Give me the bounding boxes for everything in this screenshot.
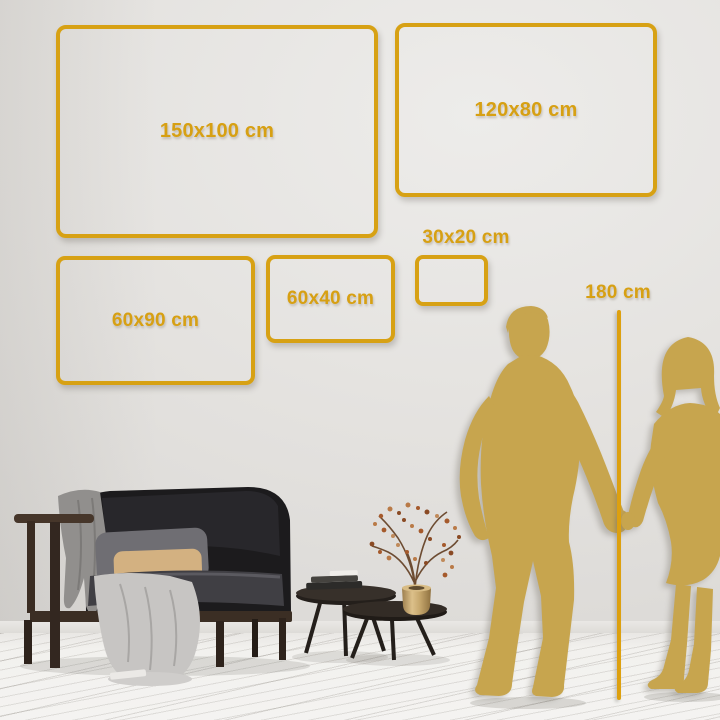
sofa-leg xyxy=(216,621,224,667)
sofa xyxy=(14,487,292,686)
books xyxy=(306,570,363,590)
silhouette-shadow xyxy=(644,692,720,702)
height-marker-label: 180 cm xyxy=(557,281,679,305)
size-label: 120x80 cm xyxy=(474,99,577,122)
size-frame-60x90: 60x90 cm xyxy=(56,256,255,385)
size-frame-120x80: 120x80 cm xyxy=(395,23,657,197)
table-shadow xyxy=(346,654,450,666)
size-label: 60x40 cm xyxy=(287,288,374,310)
height-label-text: 180 cm xyxy=(585,282,651,304)
sofa-leg xyxy=(24,620,32,664)
sofa-rear-post xyxy=(27,521,35,613)
height-ruler-line xyxy=(617,310,621,700)
sofa-arm-rail xyxy=(14,514,94,523)
sofa-leg xyxy=(279,618,286,660)
size-label: 150x100 cm xyxy=(160,120,274,143)
coffee-tables xyxy=(296,503,461,661)
sofa-front-post xyxy=(50,522,60,668)
woman-head xyxy=(674,346,702,382)
size-label-30x20: 30x20 cm xyxy=(405,226,527,250)
size-label: 30x20 cm xyxy=(422,227,509,249)
sofa-leg xyxy=(252,619,258,657)
vase-opening xyxy=(409,586,425,590)
table-top xyxy=(343,601,447,617)
woman-silhouette xyxy=(621,337,720,693)
woman-left-leg xyxy=(648,584,691,689)
size-guide-image: 150x100 cm 120x80 cm 60x90 cm 60x40 cm 3… xyxy=(0,0,720,720)
size-frame-60x40: 60x40 cm xyxy=(266,255,395,343)
silhouette-shadow xyxy=(470,697,586,709)
size-frame-150x100: 150x100 cm xyxy=(56,25,378,238)
size-label: 60x90 cm xyxy=(112,310,199,332)
vase xyxy=(402,588,431,615)
plant-blossoms xyxy=(370,503,461,578)
woman-hand xyxy=(621,512,635,530)
man-silhouette xyxy=(460,306,629,697)
book xyxy=(330,570,358,576)
size-frame-30x20 xyxy=(415,255,488,306)
woman-dress xyxy=(650,403,720,585)
